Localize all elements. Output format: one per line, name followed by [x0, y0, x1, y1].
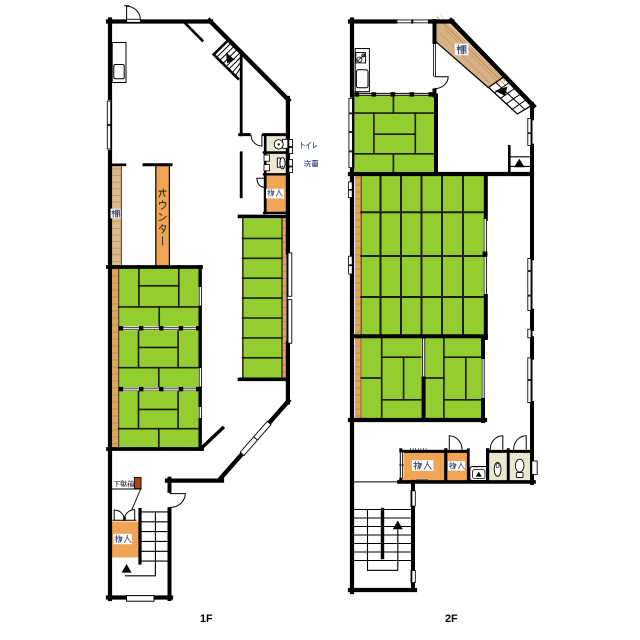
svg-text:2F: 2F	[445, 613, 458, 625]
svg-text:1F: 1F	[200, 613, 213, 625]
